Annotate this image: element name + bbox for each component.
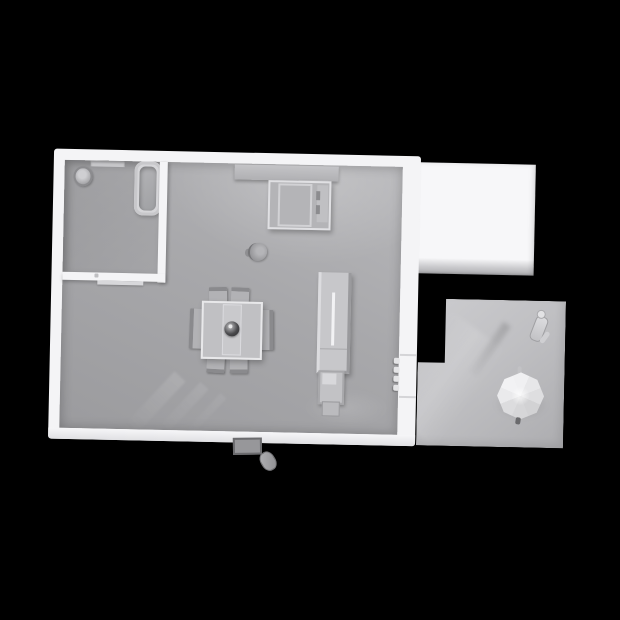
desk-cabinet-side-panel: [317, 185, 329, 222]
bathroom-door-hinge: [94, 273, 98, 277]
patio-door-frame-seam: [399, 396, 416, 398]
desk-cabinet-top: [278, 183, 313, 227]
main-building: [48, 149, 421, 447]
tall-cabinet: [316, 272, 351, 374]
patio-door-frame-seam: [400, 354, 417, 356]
doormat: [233, 438, 262, 455]
bathroom-wall-niche: [91, 160, 125, 167]
cabinet-handle-line: [331, 292, 335, 345]
floor-light-streak: [125, 371, 185, 434]
parasol-peak-highlight: [511, 386, 530, 405]
bowl-highlight: [228, 324, 232, 328]
dining-table: [201, 301, 263, 360]
desk-cabinet: [267, 180, 331, 230]
cabinet-seam: [320, 348, 347, 350]
patio-door-hinge: [394, 358, 400, 364]
cabinet-stool-foot: [322, 401, 340, 416]
bathtub-basin: [139, 166, 157, 210]
parasol-tip: [515, 417, 521, 425]
roofed-annex: [418, 162, 536, 275]
patio: [416, 298, 566, 448]
patio-door-hinge: [393, 385, 399, 391]
patio-door-hinge: [393, 376, 399, 382]
patio-door-handle: [393, 367, 399, 373]
desk-cabinet-notch: [316, 191, 320, 200]
render-viewport[interactable]: [0, 0, 620, 620]
cabinet-stool: [318, 370, 345, 405]
floor-light-patch: [303, 389, 389, 427]
bathtub: [134, 161, 162, 216]
cabinet-stool-top: [322, 373, 336, 384]
desk-cabinet-notch: [316, 205, 320, 214]
wall-shelf: [235, 164, 339, 181]
scene-tilt-wrapper: [0, 0, 620, 620]
